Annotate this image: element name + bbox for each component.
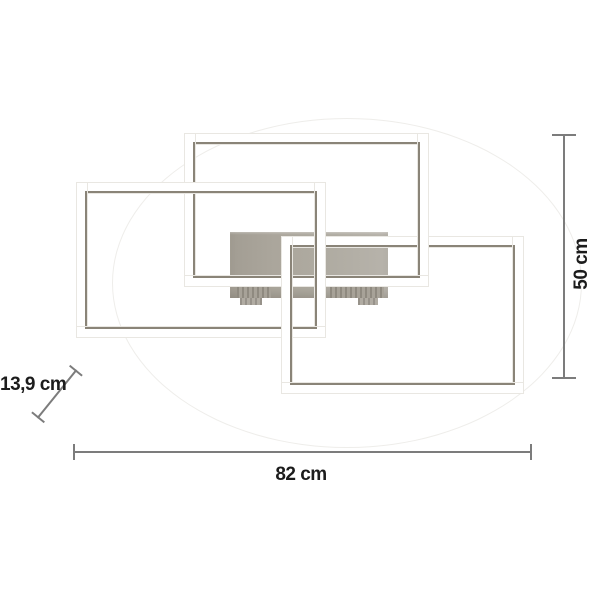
heatsink-fins-left (237, 285, 271, 298)
mounting-tab-left (240, 298, 262, 305)
height-dimension-label: 50 cm (571, 204, 593, 324)
width-dimension-line (73, 451, 532, 453)
heatsink-fins-right (330, 285, 384, 298)
frame-back-top-bar (185, 134, 428, 144)
frame-back-left-bar (185, 134, 195, 286)
width-dimension-label: 82 cm (241, 464, 361, 486)
frame-right-right-bar (513, 237, 523, 393)
frame-right-left-bar (282, 237, 292, 393)
frame-left-top-bar (77, 183, 325, 193)
depth-dimension-label: 13,9 cm (0, 374, 66, 396)
frame-right-bottom-bar (282, 383, 523, 393)
frame-back-bottom-bar (185, 276, 428, 286)
frame-back-right-bar (418, 134, 428, 286)
frame-left-right-bar (315, 183, 325, 337)
mounting-tab-right (358, 298, 378, 305)
frame-left-left-bar (77, 183, 87, 337)
product-dimension-diagram: 82 cm 50 cm 13,9 cm (0, 0, 600, 600)
height-dimension-line (563, 134, 565, 379)
